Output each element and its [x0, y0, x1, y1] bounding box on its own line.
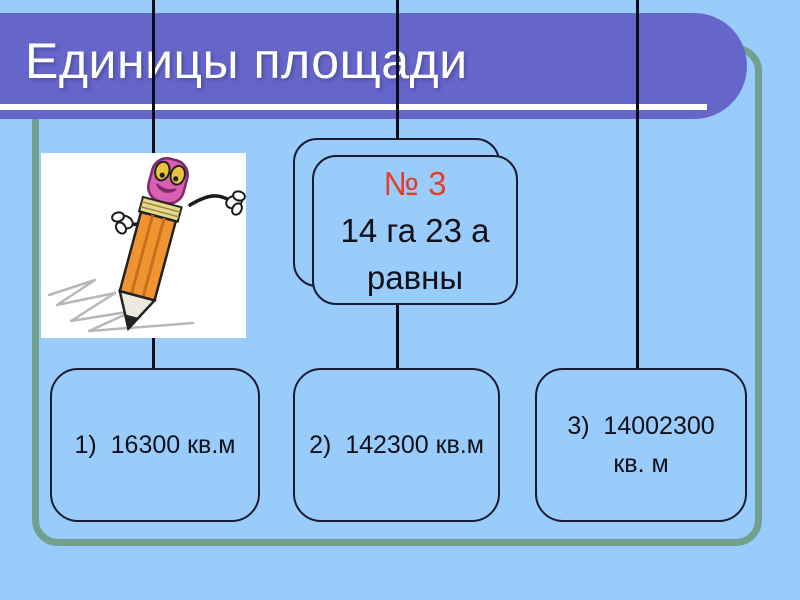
pencil-clipart-image	[41, 153, 246, 338]
answer-1-text: 1) 16300 кв.м	[75, 426, 236, 464]
connector-line-3	[636, 0, 639, 370]
slide: Единицы площади	[0, 0, 800, 600]
page-title: Единицы площади	[25, 13, 715, 104]
answer-2-text: 2) 142300 кв.м	[309, 426, 484, 464]
answer-3-text-line2: кв. м	[613, 445, 668, 483]
title-underline	[0, 104, 707, 110]
answer-option-2[interactable]: 2) 142300 кв.м	[293, 368, 500, 522]
answer-option-3[interactable]: 3) 14002300 кв. м	[535, 368, 747, 522]
question-number: № 3	[384, 160, 447, 207]
question-line-1: 14 га 23 а	[341, 207, 490, 254]
question-card: № 3 14 га 23 а равны	[312, 155, 518, 305]
answer-3-text: 3) 14002300	[567, 407, 714, 445]
pencil-cartoon-icon	[41, 153, 246, 338]
question-line-2: равны	[367, 254, 463, 301]
answer-option-1[interactable]: 1) 16300 кв.м	[50, 368, 260, 522]
